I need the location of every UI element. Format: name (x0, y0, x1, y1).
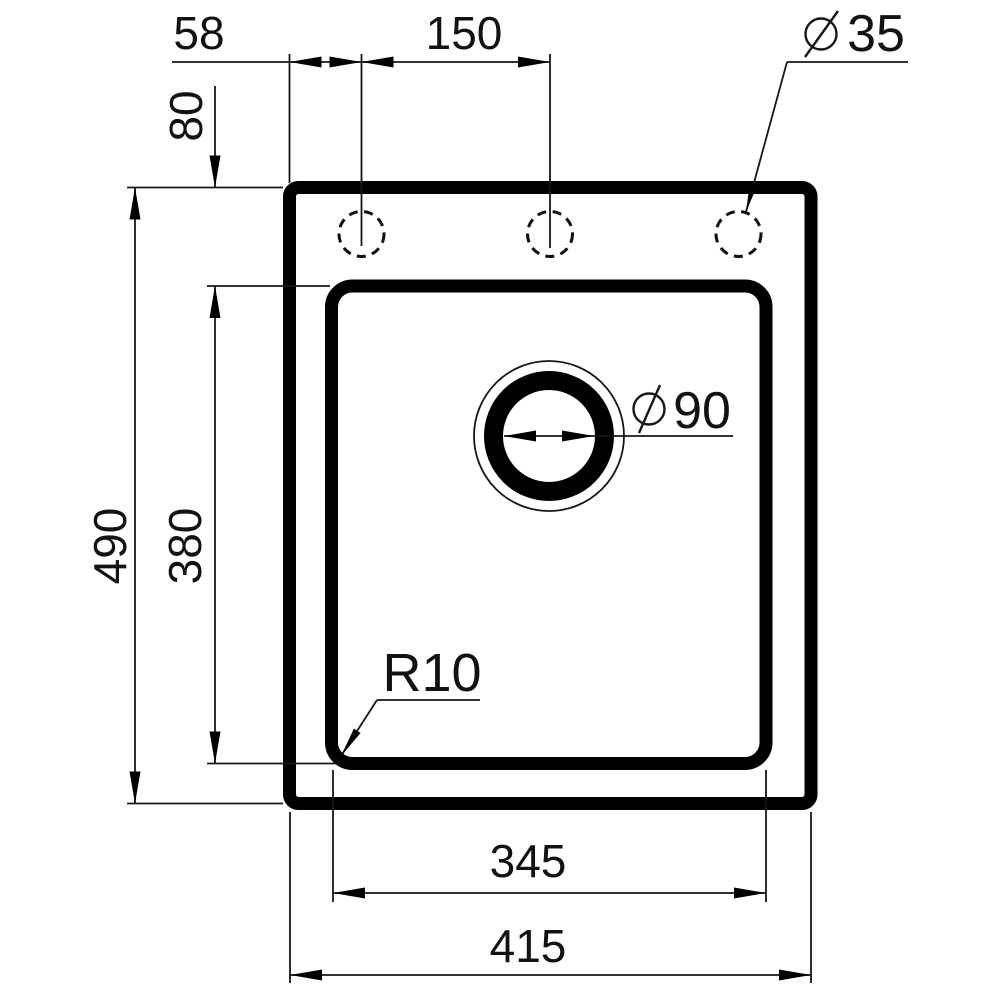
radius-label: R10 (382, 643, 481, 703)
dim-490-label: 490 (84, 508, 136, 585)
dia-90-label: 90 (673, 382, 731, 440)
dim-415-label: 415 (490, 920, 567, 972)
sink-dimension-drawing: 58 150 35 90 490 80 (0, 0, 1000, 1000)
dia-35-label: 35 (847, 5, 905, 63)
dim-345-label: 345 (490, 835, 567, 887)
dim-150-label: 150 (426, 7, 503, 59)
dim-58-label: 58 (173, 7, 224, 59)
dim-80-label: 80 (160, 90, 212, 141)
dim-380-label: 380 (159, 508, 211, 585)
drawing-svg: 58 150 35 90 490 80 (0, 0, 1000, 1000)
